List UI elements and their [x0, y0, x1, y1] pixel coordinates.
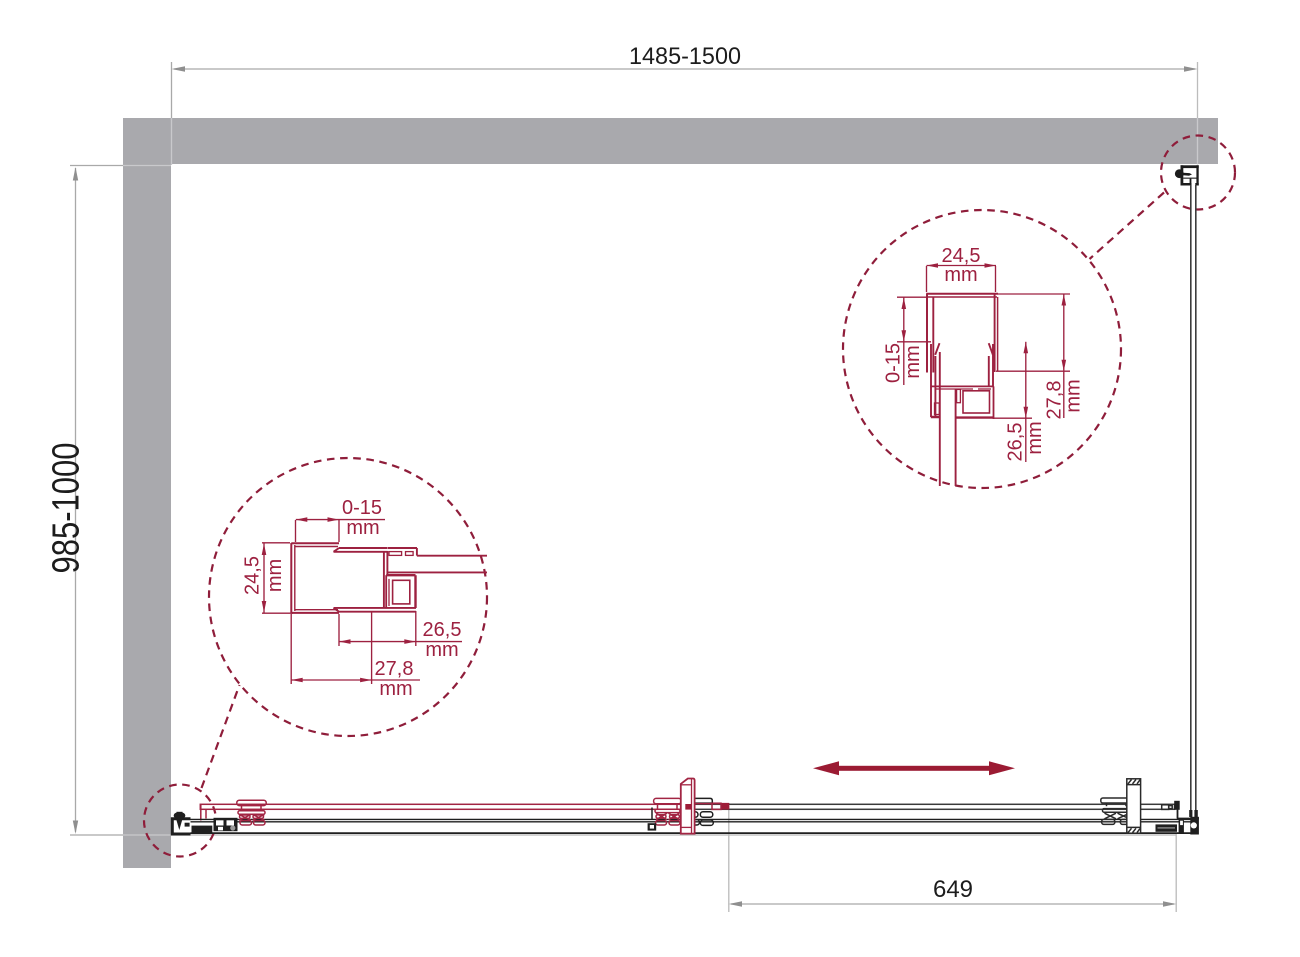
svg-text:mm: mm — [264, 559, 286, 592]
svg-text:mm: mm — [1063, 379, 1085, 412]
svg-text:27,8: 27,8 — [375, 658, 414, 680]
svg-text:0-15: 0-15 — [342, 497, 382, 519]
svg-text:mm: mm — [346, 517, 379, 539]
svg-text:1485-1500: 1485-1500 — [629, 43, 741, 70]
svg-text:mm: mm — [425, 639, 458, 661]
svg-text:mm: mm — [379, 678, 412, 700]
svg-text:mm: mm — [902, 345, 924, 378]
svg-text:mm: mm — [944, 264, 977, 286]
svg-text:mm: mm — [1024, 421, 1046, 454]
svg-text:26,5: 26,5 — [423, 619, 462, 641]
svg-text:24,5: 24,5 — [242, 556, 264, 595]
svg-text:985-1000: 985-1000 — [46, 443, 88, 574]
svg-text:649: 649 — [933, 876, 973, 903]
